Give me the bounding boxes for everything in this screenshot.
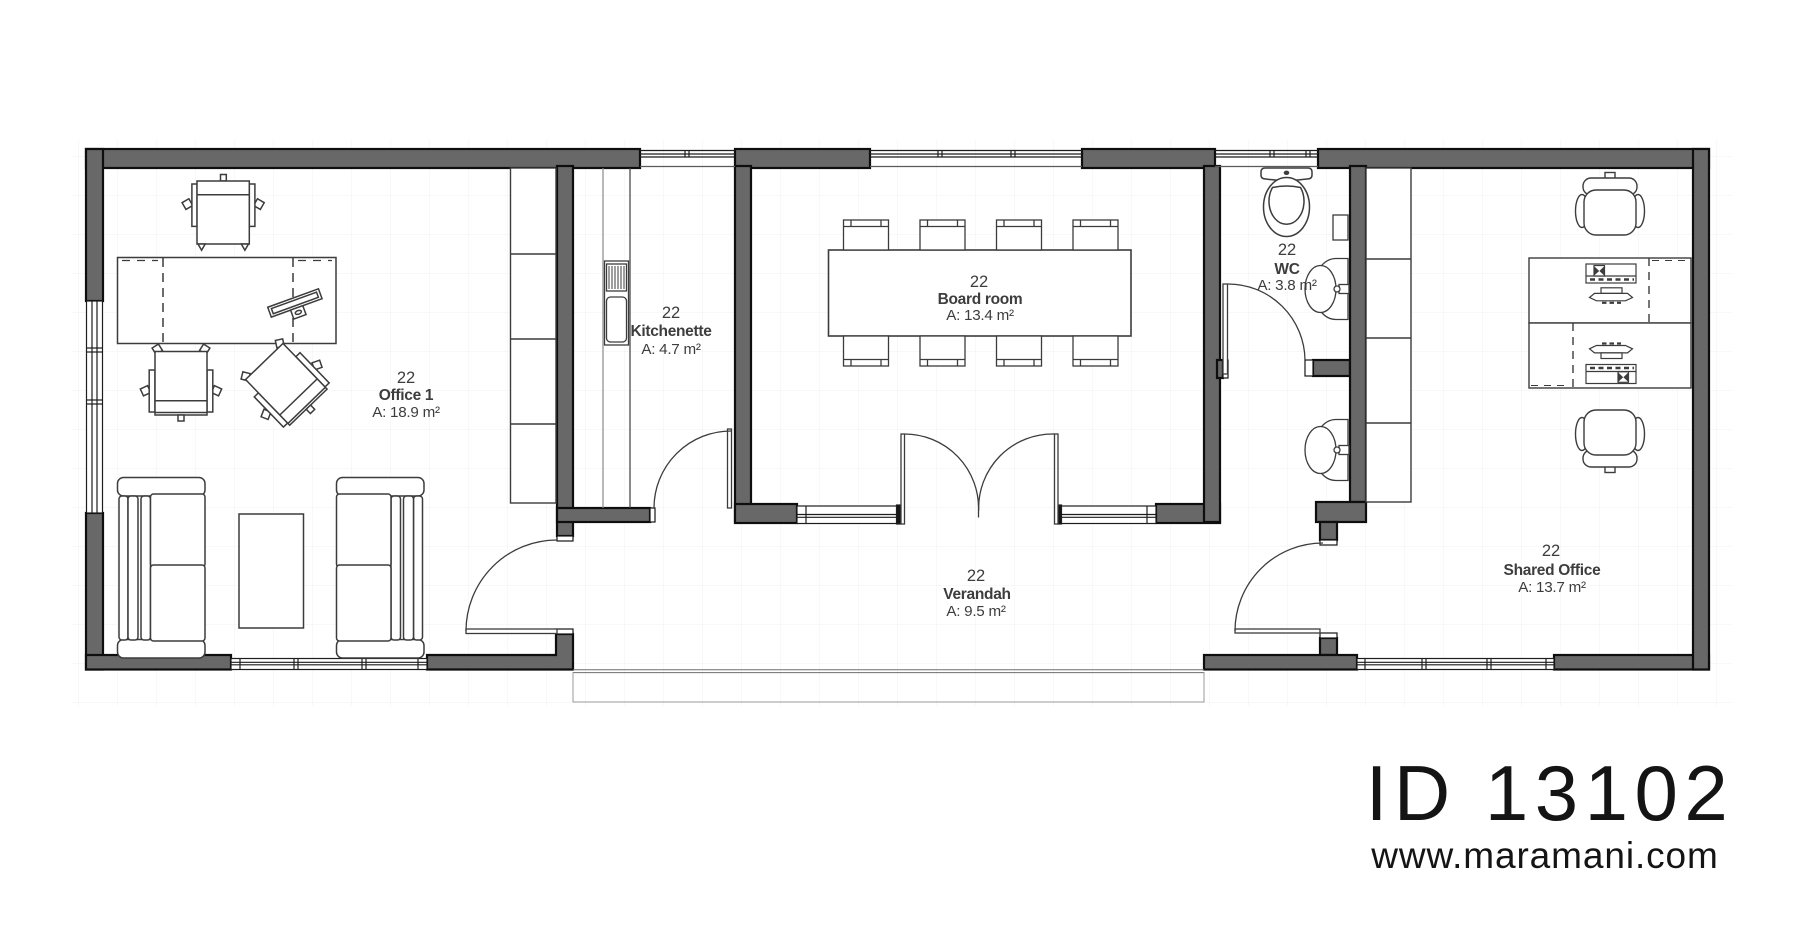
svg-text:www.maramani.com: www.maramani.com bbox=[1370, 835, 1718, 876]
svg-text:WC: WC bbox=[1274, 261, 1299, 278]
svg-text:22: 22 bbox=[662, 304, 680, 322]
svg-text:22: 22 bbox=[1278, 241, 1296, 259]
svg-text:ID 13102: ID 13102 bbox=[1366, 749, 1735, 837]
svg-text:Board room: Board room bbox=[938, 291, 1023, 308]
svg-text:Shared Office: Shared Office bbox=[1504, 562, 1602, 579]
svg-text:A: 4.7 m²: A: 4.7 m² bbox=[641, 341, 701, 358]
svg-text:22: 22 bbox=[970, 273, 988, 291]
svg-text:Verandah: Verandah bbox=[943, 586, 1010, 603]
svg-text:Kitchenette: Kitchenette bbox=[630, 323, 712, 340]
svg-text:A: 18.9 m²: A: 18.9 m² bbox=[372, 404, 440, 421]
svg-text:A: 13.4 m²: A: 13.4 m² bbox=[946, 307, 1014, 324]
svg-text:A: 9.5 m²: A: 9.5 m² bbox=[946, 603, 1006, 620]
svg-text:A: 13.7 m²: A: 13.7 m² bbox=[1518, 579, 1586, 596]
svg-text:Office 1: Office 1 bbox=[379, 387, 434, 404]
svg-text:A: 3.8 m²: A: 3.8 m² bbox=[1257, 277, 1317, 294]
svg-text:22: 22 bbox=[967, 567, 985, 585]
svg-text:22: 22 bbox=[397, 369, 415, 387]
svg-text:22: 22 bbox=[1542, 542, 1560, 560]
